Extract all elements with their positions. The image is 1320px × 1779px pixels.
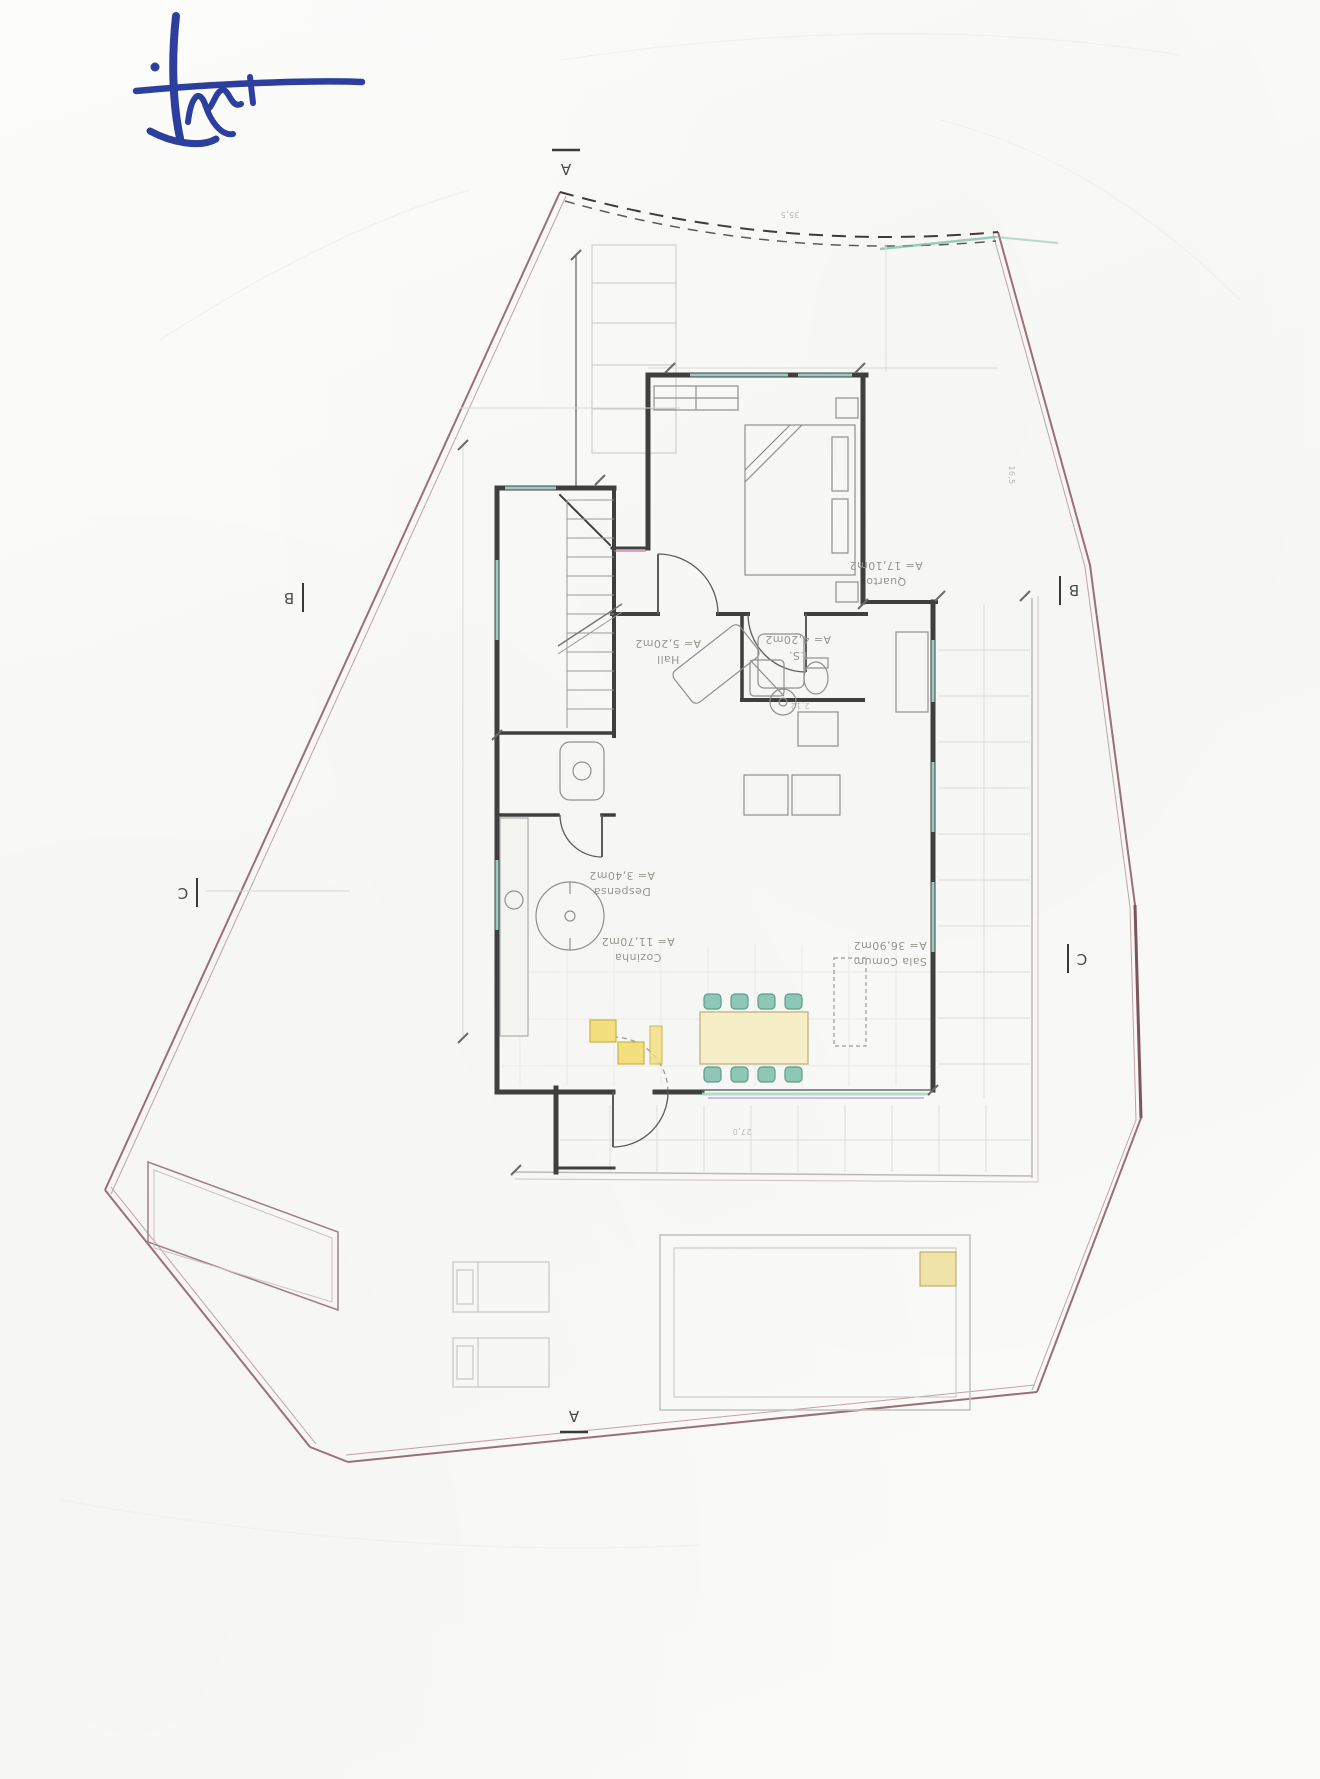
room-name-quarto: Quarto bbox=[866, 575, 906, 588]
section-marker-a-bottom: A bbox=[560, 1407, 588, 1432]
room-area-sala: A= 36,90m2 bbox=[853, 939, 926, 952]
signature bbox=[136, 16, 362, 144]
room-labels: Quarto A= 17,10m2 Hall A= 5,20m2 I.S. A=… bbox=[589, 559, 927, 968]
room-label-sala: Sala Comum A= 36,90m2 bbox=[853, 939, 927, 968]
planned-element-dashed bbox=[834, 958, 866, 1046]
room-area-quarto: A= 17,10m2 bbox=[849, 559, 922, 572]
room-name-despensa: Despensa bbox=[593, 885, 650, 898]
room-label-quarto: Quarto A= 17,10m2 bbox=[849, 559, 922, 588]
section-marker-b-right: B bbox=[1060, 576, 1079, 605]
room-area-is: A= 4,20m2 bbox=[765, 633, 831, 646]
room-label-despensa: Despensa A= 3,40m2 bbox=[589, 869, 655, 898]
marker-letter-c-right: C bbox=[1077, 950, 1087, 968]
room-label-cozinha: Cozinha A= 11,70m2 bbox=[601, 935, 674, 964]
dim-text-terrace: 27,0 bbox=[732, 1127, 751, 1136]
section-marker-a-top: A bbox=[552, 150, 580, 178]
marker-letter-a-bottom: A bbox=[568, 1407, 579, 1425]
dim-text-boundary: 35,5 bbox=[780, 210, 799, 219]
coffee-tables bbox=[744, 775, 840, 815]
room-label-hall: Hall A= 5,20m2 bbox=[635, 637, 701, 666]
ramp-outline bbox=[148, 1162, 338, 1310]
plot-boundary bbox=[105, 192, 1141, 1462]
section-markers: A B B C C A bbox=[178, 150, 1087, 1432]
section-marker-c-right: C bbox=[1068, 944, 1087, 973]
sun-loungers bbox=[453, 1262, 549, 1387]
pool-equipment-box bbox=[920, 1252, 956, 1286]
top-boundary-dashed bbox=[560, 192, 1058, 249]
pool-area bbox=[453, 1235, 970, 1410]
section-marker-b-left: B bbox=[284, 583, 303, 612]
room-area-despensa: A= 3,40m2 bbox=[589, 869, 655, 882]
dim-text-right: 16,5 bbox=[1007, 465, 1016, 484]
marker-letter-c-left: C bbox=[178, 884, 188, 902]
dim-text-is: 2,12 bbox=[790, 701, 809, 710]
scanned-floor-plan-page: A B B C C A bbox=[0, 0, 1320, 1779]
dining-set bbox=[700, 994, 808, 1082]
room-name-sala: Sala Comum bbox=[853, 955, 927, 968]
room-name-is: I.S. bbox=[789, 649, 808, 662]
room-area-cozinha: A= 11,70m2 bbox=[601, 935, 674, 948]
kitchen-fixtures bbox=[500, 818, 604, 1036]
marker-letter-b-right: B bbox=[1069, 581, 1079, 599]
section-marker-c-left: C bbox=[178, 878, 350, 907]
entry-steps bbox=[576, 244, 886, 487]
marker-letter-b-left: B bbox=[284, 589, 294, 607]
bed bbox=[745, 398, 858, 602]
room-area-hall: A= 5,20m2 bbox=[635, 637, 701, 650]
wardrobe bbox=[654, 386, 738, 410]
room-name-hall: Hall bbox=[657, 653, 680, 666]
room-name-cozinha: Cozinha bbox=[615, 951, 662, 964]
laundry-fixture bbox=[560, 742, 604, 800]
floor-plan-drawing: A B B C C A bbox=[0, 0, 1320, 1779]
marker-letter-a-top: A bbox=[560, 160, 571, 178]
highlighted-appliances bbox=[590, 1020, 662, 1064]
